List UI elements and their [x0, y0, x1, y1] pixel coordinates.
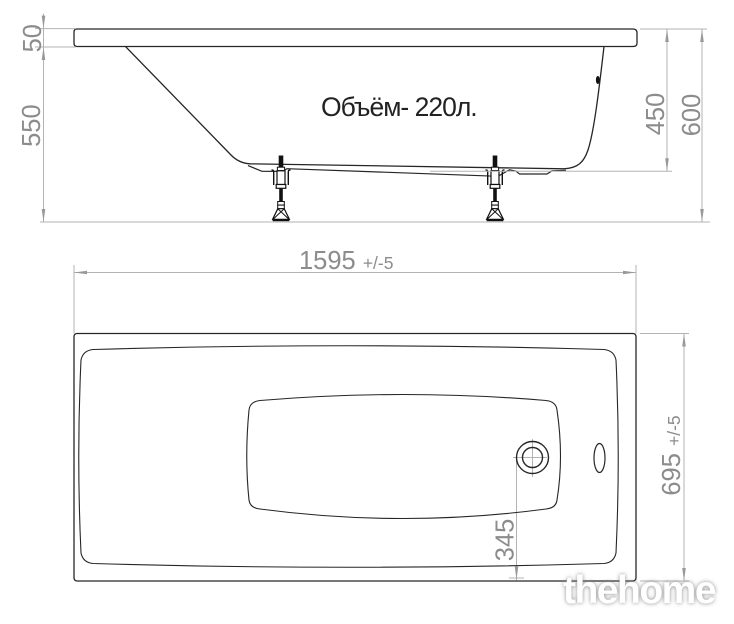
svg-text:450: 450 [642, 93, 670, 136]
svg-text:600: 600 [678, 94, 706, 137]
svg-text:1595 +/-5: 1595 +/-5 [299, 247, 393, 275]
svg-text:550: 550 [18, 104, 46, 147]
svg-text:695 +/-5: 695 +/-5 [658, 415, 686, 495]
svg-text:thehome: thehome [563, 569, 716, 612]
svg-text:Объём- 220л.: Объём- 220л. [321, 92, 477, 122]
svg-text:345: 345 [492, 519, 520, 562]
svg-text:50: 50 [19, 24, 47, 52]
